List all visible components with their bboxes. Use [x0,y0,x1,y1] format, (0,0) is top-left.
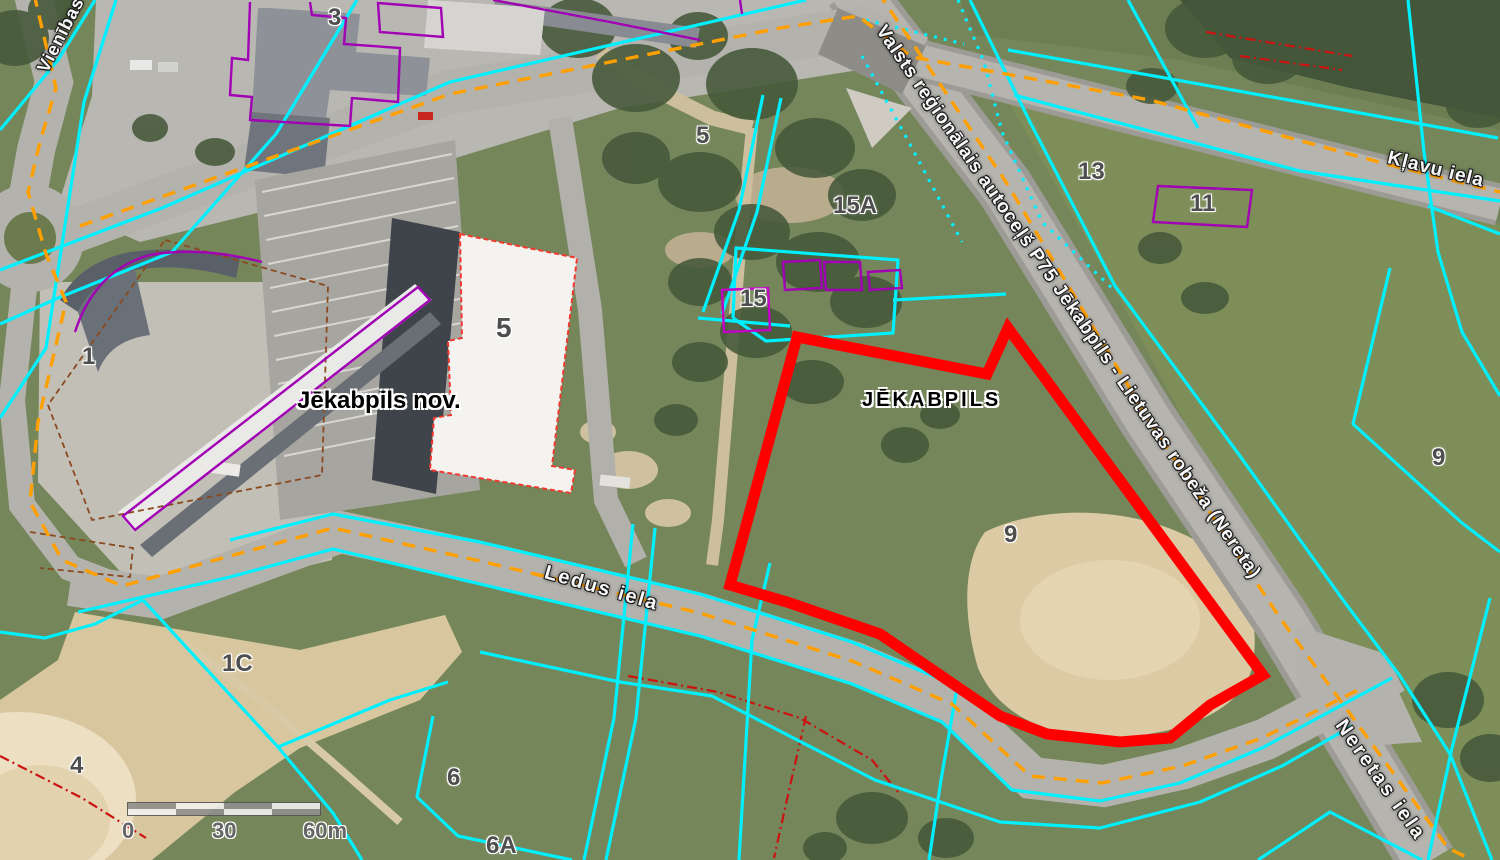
scale-tick-30: 30 [212,820,236,842]
parcel-number-9-right: 9 [1432,446,1445,470]
scale-bar [128,803,320,815]
parcel-number-1: 1 [82,345,95,369]
satellite-base [0,0,1500,860]
municipality-label: Jēkabpils nov. [297,389,461,413]
parcel-number-4: 4 [70,754,83,778]
city-label: JĒKABPILS [862,390,1001,410]
parcel-number-5-building: 5 [496,314,512,342]
scale-tick-60m: 60m [303,820,347,842]
parcel-number-3: 3 [328,6,341,30]
map-canvas[interactable]: Vienības Valsts reģionālais autoceļš P75… [0,0,1500,860]
parcel-number-9-mid: 9 [1004,523,1017,547]
parcel-number-13: 13 [1078,160,1105,184]
parcel-number-1c: 1C [222,652,253,676]
parcel-number-5-top: 5 [696,124,709,148]
parcel-number-11: 11 [1190,192,1215,216]
scale-tick-0: 0 [122,820,134,842]
parcel-number-6a: 6A [486,834,517,858]
parcel-number-15: 15 [740,287,767,311]
parcel-number-6: 6 [447,766,460,790]
parcel-number-15a: 15A [833,194,877,218]
